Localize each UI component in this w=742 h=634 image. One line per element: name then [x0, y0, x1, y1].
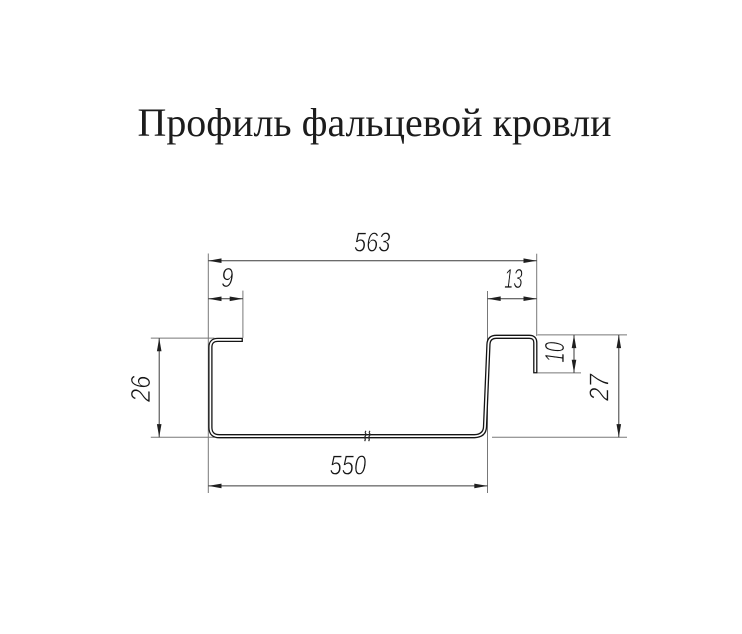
svg-text:563: 563: [354, 227, 391, 258]
svg-text:26: 26: [125, 375, 156, 403]
svg-text:10: 10: [539, 342, 570, 363]
svg-text:550: 550: [330, 449, 367, 480]
svg-text:Профиль фальцевой кровли: Профиль фальцевой кровли: [138, 100, 612, 145]
svg-text:13: 13: [504, 263, 523, 294]
svg-text:9: 9: [221, 262, 234, 293]
svg-text:27: 27: [584, 373, 615, 402]
